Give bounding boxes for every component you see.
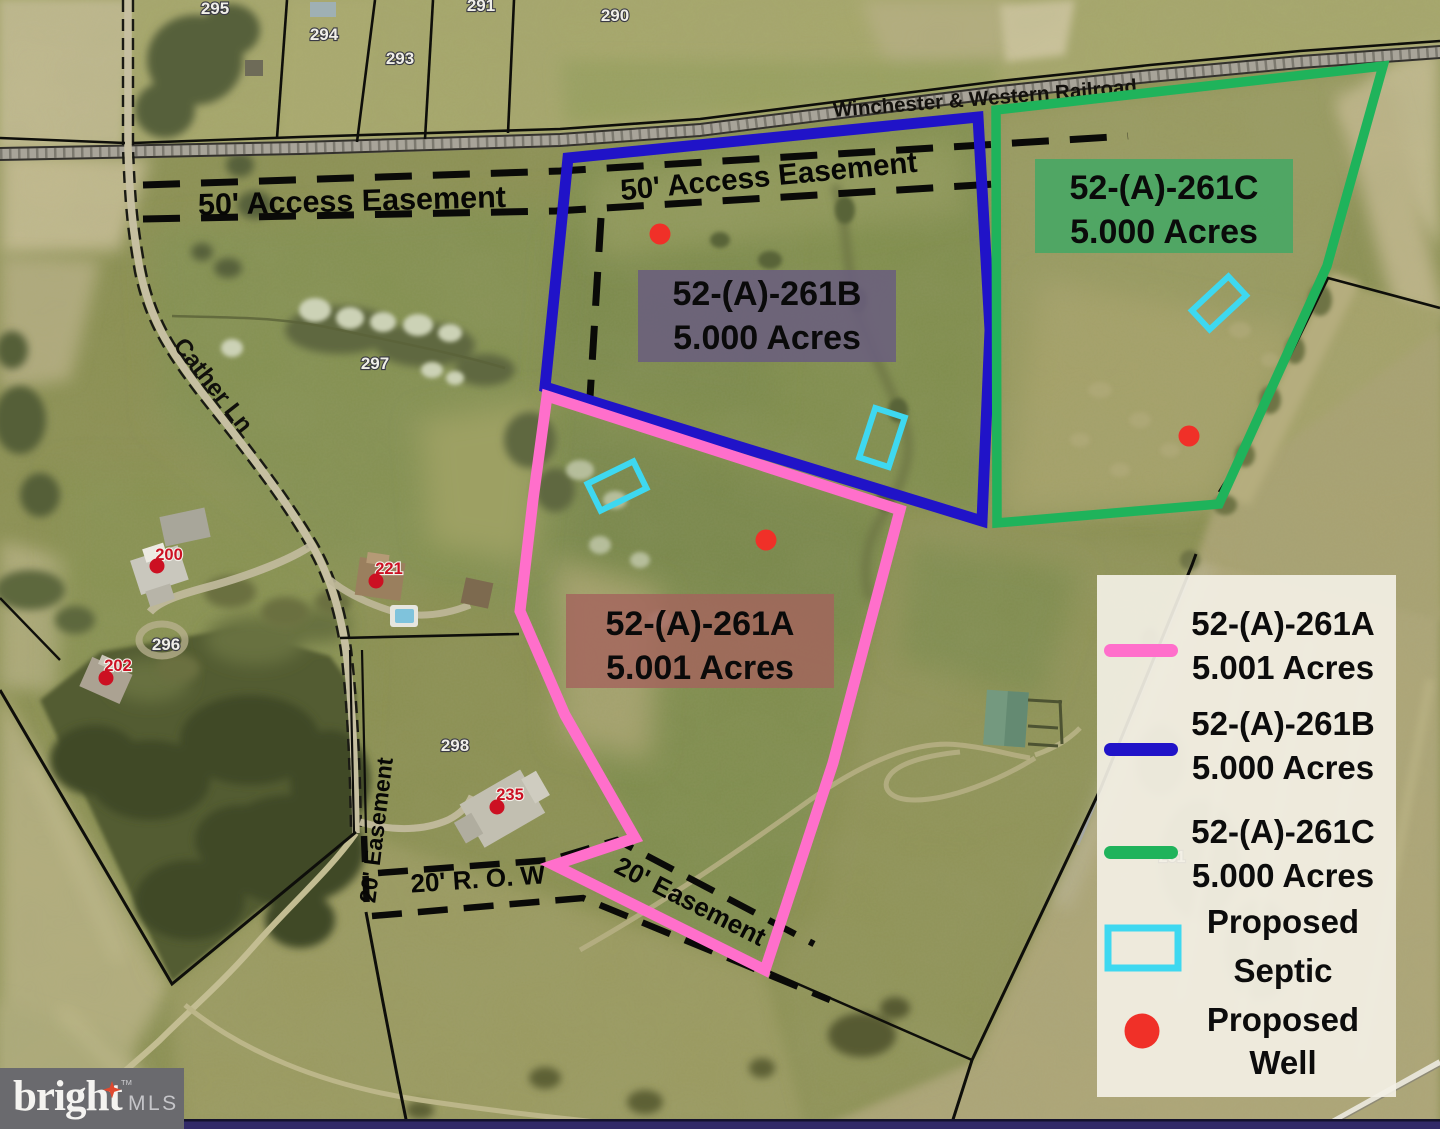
- svg-text:297: 297: [361, 354, 389, 373]
- svg-text:bright: bright: [13, 1073, 123, 1120]
- svg-text:5.000 Acres: 5.000 Acres: [1192, 749, 1374, 786]
- svg-text:52-(A)-261A: 52-(A)-261A: [606, 605, 795, 643]
- svg-text:52-(A)-261B: 52-(A)-261B: [1191, 705, 1374, 742]
- svg-text:52-(A)-261C: 52-(A)-261C: [1191, 813, 1374, 850]
- svg-text:290: 290: [601, 6, 629, 25]
- svg-text:298: 298: [441, 736, 469, 755]
- svg-text:52-(A)-261B: 52-(A)-261B: [673, 275, 862, 313]
- svg-text:Septic: Septic: [1233, 952, 1332, 989]
- svg-text:Well: Well: [1249, 1044, 1316, 1081]
- svg-text:Proposed: Proposed: [1207, 1001, 1359, 1038]
- svg-text:296: 296: [152, 635, 180, 654]
- svg-text:52-(A)-261A: 52-(A)-261A: [1191, 605, 1374, 642]
- svg-text:291: 291: [467, 0, 495, 15]
- svg-text:MLS: MLS: [128, 1092, 179, 1115]
- svg-text:TM: TM: [121, 1078, 132, 1087]
- svg-text:5.001 Acres: 5.001 Acres: [1192, 649, 1374, 686]
- svg-text:293: 293: [386, 49, 414, 68]
- svg-text:5.001 Acres: 5.001 Acres: [606, 649, 794, 687]
- svg-text:5.000 Acres: 5.000 Acres: [673, 319, 861, 357]
- svg-text:294: 294: [310, 25, 339, 44]
- svg-text:52-(A)-261C: 52-(A)-261C: [1070, 169, 1259, 207]
- svg-text:Proposed: Proposed: [1207, 903, 1359, 940]
- svg-text:5.000 Acres: 5.000 Acres: [1070, 213, 1258, 251]
- svg-text:295: 295: [201, 0, 229, 18]
- svg-text:5.000 Acres: 5.000 Acres: [1192, 857, 1374, 894]
